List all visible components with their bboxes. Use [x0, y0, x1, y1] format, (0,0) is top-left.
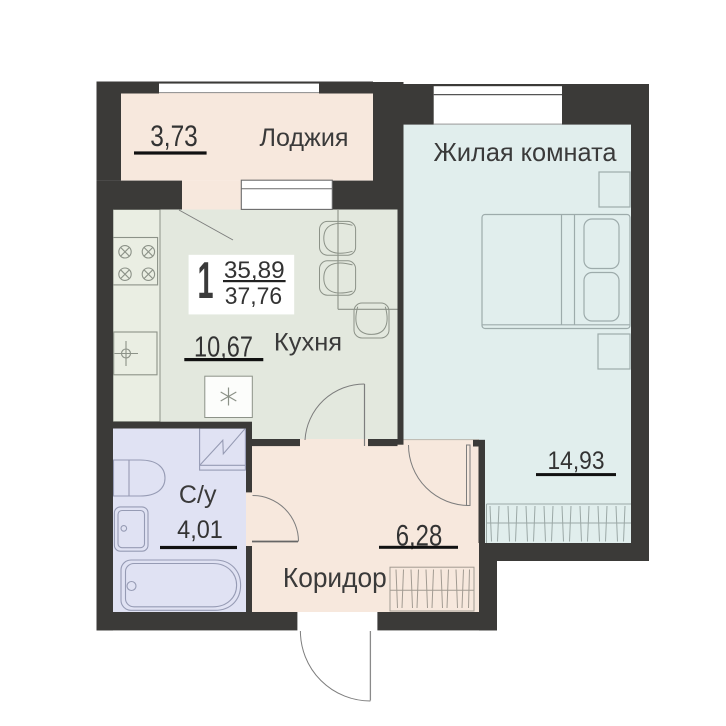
svg-text:Коридор: Коридор: [283, 562, 387, 593]
svg-text:37,76: 37,76: [225, 283, 282, 310]
svg-text:Кухня: Кухня: [274, 329, 342, 357]
svg-text:3,73: 3,73: [150, 120, 198, 153]
svg-text:Жилая комната: Жилая комната: [434, 137, 618, 167]
svg-text:С/у: С/у: [179, 481, 217, 509]
svg-text:14,93: 14,93: [548, 447, 605, 475]
svg-text:1: 1: [198, 252, 214, 310]
svg-text:4,01: 4,01: [177, 516, 223, 544]
svg-text:Лоджия: Лоджия: [260, 124, 349, 152]
